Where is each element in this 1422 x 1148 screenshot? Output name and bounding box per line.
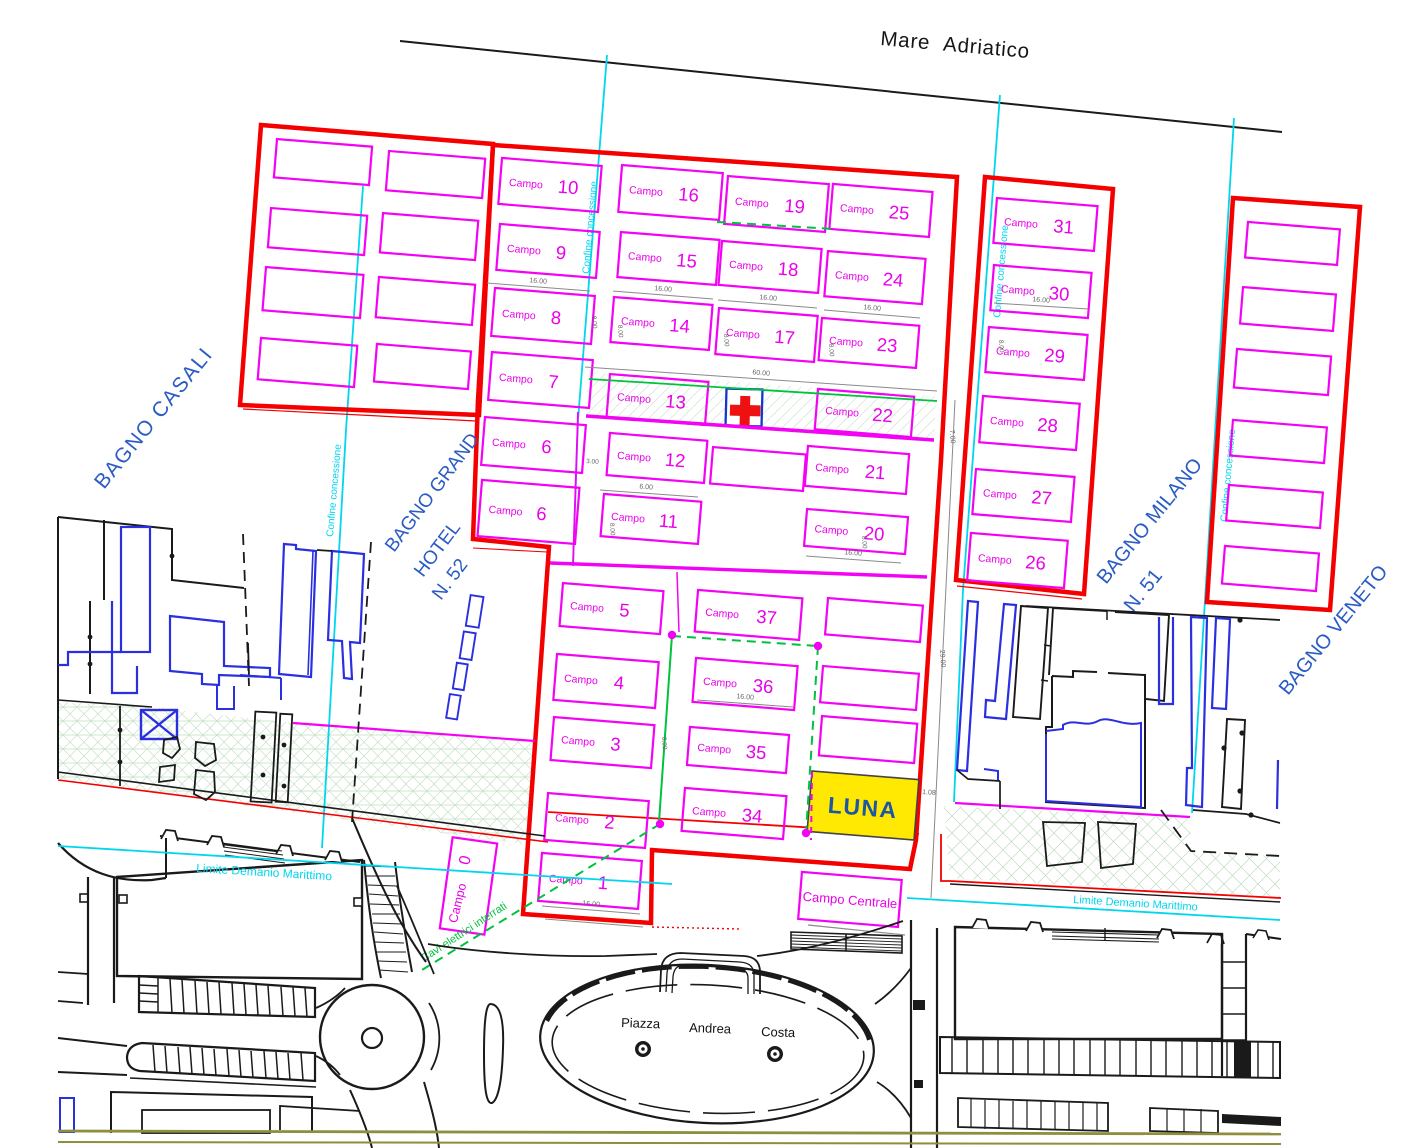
svg-text:16.00: 16.00 — [844, 549, 862, 557]
svg-text:29: 29 — [1044, 344, 1066, 367]
svg-text:8.00: 8.00 — [608, 523, 616, 536]
svg-text:5: 5 — [619, 599, 631, 621]
svg-text:8.00: 8.00 — [827, 344, 835, 357]
svg-text:37: 37 — [756, 606, 778, 629]
svg-text:16.00: 16.00 — [863, 304, 881, 312]
svg-text:3: 3 — [610, 733, 622, 755]
svg-text:13: 13 — [665, 390, 687, 413]
svg-text:28: 28 — [1037, 414, 1059, 437]
svg-text:Piazza: Piazza — [621, 1015, 661, 1031]
svg-text:12: 12 — [664, 449, 686, 472]
svg-text:8.00: 8.00 — [616, 325, 624, 338]
svg-text:30: 30 — [1048, 282, 1070, 305]
svg-text:60.00: 60.00 — [752, 369, 770, 377]
svg-text:7.00: 7.00 — [948, 430, 956, 444]
svg-text:10: 10 — [557, 176, 579, 199]
svg-text:31: 31 — [1053, 215, 1075, 238]
svg-text:6: 6 — [536, 503, 548, 525]
svg-text:22: 22 — [872, 404, 894, 427]
svg-text:8.00: 8.00 — [997, 340, 1005, 353]
svg-text:16.00: 16.00 — [582, 900, 600, 908]
svg-text:16: 16 — [678, 183, 700, 206]
svg-text:8.00: 8.00 — [722, 334, 730, 347]
svg-text:8.00: 8.00 — [590, 316, 598, 329]
svg-text:18: 18 — [777, 258, 799, 281]
svg-text:16.00: 16.00 — [1032, 296, 1050, 304]
svg-text:Andrea: Andrea — [689, 1020, 732, 1036]
svg-text:35: 35 — [745, 741, 767, 764]
svg-text:16.00: 16.00 — [529, 277, 547, 285]
svg-text:4: 4 — [613, 672, 625, 694]
svg-text:Costa: Costa — [761, 1024, 796, 1040]
svg-text:8.00: 8.00 — [660, 737, 668, 750]
svg-text:1: 1 — [597, 872, 609, 894]
svg-text:17: 17 — [774, 326, 796, 349]
svg-text:6.00: 6.00 — [639, 483, 653, 491]
svg-text:23: 23 — [876, 334, 898, 357]
svg-text:26: 26 — [1025, 551, 1047, 574]
svg-text:1.08: 1.08 — [922, 789, 936, 797]
svg-text:24: 24 — [882, 268, 904, 291]
svg-text:3.00: 3.00 — [586, 458, 599, 466]
svg-text:25: 25 — [888, 201, 910, 224]
svg-text:16.00: 16.00 — [759, 294, 777, 302]
svg-text:15: 15 — [676, 249, 698, 272]
svg-text:27: 27 — [1031, 486, 1053, 509]
svg-text:21: 21 — [864, 461, 886, 484]
svg-text:2: 2 — [604, 811, 616, 833]
svg-text:29.00: 29.00 — [938, 650, 946, 668]
svg-text:6: 6 — [541, 436, 553, 458]
svg-text:36: 36 — [752, 675, 774, 698]
svg-text:8: 8 — [550, 307, 562, 329]
svg-text:16.00: 16.00 — [736, 693, 754, 701]
svg-text:19: 19 — [784, 195, 806, 218]
svg-text:8.00: 8.00 — [860, 536, 868, 549]
svg-text:34: 34 — [741, 804, 763, 827]
svg-text:14: 14 — [669, 314, 691, 337]
svg-text:9: 9 — [555, 242, 567, 264]
svg-text:7: 7 — [548, 371, 560, 393]
svg-text:16.00: 16.00 — [654, 285, 672, 293]
svg-text:11: 11 — [658, 510, 679, 532]
